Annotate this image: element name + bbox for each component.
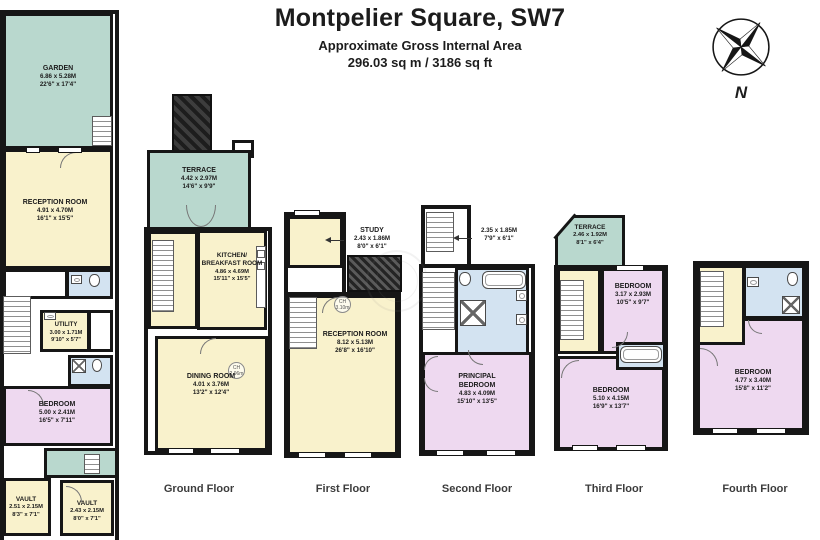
- sink-icon: [516, 290, 527, 301]
- bathtub-icon: [482, 271, 526, 289]
- room-dim-imperial: 16'9" x 13'7": [576, 403, 646, 411]
- room-name: DINING ROOM: [174, 372, 248, 381]
- chimney-block: [172, 94, 212, 152]
- title-block: Montpelier Square, SW7 Approximate Gross…: [160, 4, 680, 70]
- gross-internal-area: 296.03 sq m / 3186 sq ft: [160, 55, 680, 70]
- watermark-icon: [366, 250, 428, 312]
- room-dim-imperial: 26'8" x 16'10": [315, 347, 395, 355]
- gf-stairs: [152, 240, 174, 312]
- room-name: PRINCIPAL BEDROOM: [444, 372, 510, 390]
- room-dim-metric: 2.43 x 2.15M: [61, 508, 113, 516]
- window-marker: [168, 448, 194, 454]
- room-dim-imperial: 9'10" x 5'7": [40, 337, 92, 344]
- compass-rose-icon: [710, 16, 772, 78]
- toilet-icon: [459, 272, 471, 286]
- room-dim-imperial: 7'9" x 6'1": [473, 235, 525, 243]
- room-name: BEDROOM: [576, 386, 646, 395]
- room-name: TERRACE: [558, 224, 622, 232]
- window-marker: [58, 147, 82, 153]
- room-label-sf-landing: 2.35 x 1.85M 7'9" x 6'1": [473, 227, 525, 243]
- room-dim-metric: 3.17 x 2.93M: [603, 291, 663, 299]
- shower-icon: [782, 296, 800, 314]
- room-dim-imperial: 8'1" x 6'4": [558, 240, 622, 248]
- floorplan-page: Montpelier Square, SW7 Approximate Gross…: [0, 0, 820, 540]
- room-dim-imperial: 8'0" x 6'1": [344, 243, 400, 251]
- landing-arrow-head: [453, 235, 459, 241]
- room-dim-metric: 8.12 x 5.13M: [315, 339, 395, 347]
- room-name: UTILITY: [40, 322, 92, 330]
- window-marker: [756, 428, 786, 434]
- landing-arrow: [459, 238, 472, 239]
- room-dim-imperial: 16'1" x 15'5": [15, 215, 95, 223]
- room-name: STUDY: [344, 226, 400, 235]
- room-dim-metric: 2.43 x 1.86M: [344, 235, 400, 243]
- room-label-kitchen: KITCHEN/ BREAKFAST ROOM 4.86 x 4.69M 15'…: [201, 252, 263, 284]
- room-name: BEDROOM: [17, 400, 97, 409]
- room-dim-imperial: 15'10" x 13'5": [444, 398, 510, 406]
- room-dim-imperial: 15'8" x 11'2": [716, 385, 790, 393]
- room-dim-metric: 4.01 x 3.76M: [174, 381, 248, 389]
- ff-stairs: [289, 297, 317, 349]
- room-label-lg-bedroom: BEDROOM 5.00 x 2.41M 16'5" x 7'11": [17, 400, 97, 425]
- room-dim-imperial: 8'0" x 7'1": [61, 516, 113, 524]
- lightwell-stairs: [84, 454, 100, 474]
- sf-stairs: [422, 272, 455, 330]
- compass-north-label: N: [708, 83, 774, 103]
- room-name: TERRACE: [157, 166, 241, 175]
- shower-icon: [460, 300, 486, 326]
- toilet-icon: [787, 272, 798, 286]
- lg-hall: [3, 269, 68, 299]
- window-marker: [344, 452, 372, 458]
- room-label-fourth-bedroom: BEDROOM 4.77 x 3.40M 15'8" x 11'2": [716, 368, 790, 393]
- floor-label-second: Second Floor: [427, 483, 527, 495]
- room-dim-metric: 4.83 x 4.09M: [444, 390, 510, 398]
- room-dim-metric: 4.86 x 4.69M: [201, 269, 263, 277]
- room-name: BEDROOM: [716, 368, 790, 377]
- room-dim-metric: 2.35 x 1.85M: [473, 227, 525, 235]
- ceiling-height-badge: CH 3.10m: [334, 296, 351, 313]
- sink-icon: [44, 312, 56, 320]
- room-label-tf-bedroom-back: BEDROOM 5.10 x 4.15M 16'9" x 13'7": [576, 386, 646, 411]
- room-dim-imperial: 13'2" x 12'4": [174, 389, 248, 397]
- room-label-utility: UTILITY 3.00 x 1.71M 9'10" x 5'7": [40, 322, 92, 344]
- room-label-principal-bedroom: PRINCIPAL BEDROOM 4.83 x 4.09M 15'10" x …: [444, 372, 510, 406]
- window-marker: [616, 265, 644, 271]
- toilet-icon: [89, 274, 100, 287]
- room-name: RECEPTION ROOM: [315, 330, 395, 339]
- window-marker: [294, 210, 320, 216]
- room-label-gf-terrace: TERRACE 4.42 x 2.97M 14'6" x 9'9": [157, 166, 241, 191]
- room-dim-imperial: 14'6" x 9'9": [157, 183, 241, 191]
- room-label-vault-left: VAULT 2.51 x 2.15M 8'3" x 7'1": [2, 496, 50, 519]
- room-label-garden: GARDEN 6.86 x 5.28M 22'6" x 17'4": [18, 64, 98, 89]
- room-study: [287, 216, 343, 268]
- room-dim-imperial: 16'5" x 7'11": [17, 417, 97, 425]
- room-name: RECEPTION ROOM: [15, 198, 95, 207]
- window-marker: [712, 428, 738, 434]
- window-marker: [572, 445, 598, 451]
- sink-icon: [71, 275, 82, 284]
- toilet-icon: [92, 359, 102, 372]
- lg-stairs: [3, 296, 31, 354]
- room-dim-imperial: 10'5" x 9'7": [603, 299, 663, 307]
- room-dim-imperial: 22'6" x 17'4": [18, 81, 98, 89]
- window-marker: [486, 450, 516, 456]
- floor-label-ground: Ground Floor: [149, 483, 249, 495]
- sink-icon: [516, 314, 527, 325]
- room-dim-metric: 5.10 x 4.15M: [576, 395, 646, 403]
- subtitle: Approximate Gross Internal Area: [160, 38, 680, 53]
- room-label-lg-reception: RECEPTION ROOM 4.91 x 4.70M 16'1" x 15'5…: [15, 198, 95, 223]
- room-dim-metric: 3.00 x 1.71M: [40, 330, 92, 337]
- room-dim-metric: 6.86 x 5.28M: [18, 73, 98, 81]
- study-arrow-head: [325, 237, 331, 243]
- ch-value: 3.10m: [335, 306, 350, 312]
- floor-label-fourth: Fourth Floor: [705, 483, 805, 495]
- room-label-dining: DINING ROOM 4.01 x 3.76M 13'2" x 12'4": [174, 372, 248, 397]
- room-dim-metric: 2.46 x 1.92M: [558, 232, 622, 240]
- room-label-study: STUDY 2.43 x 1.86M 8'0" x 6'1": [344, 226, 400, 251]
- tf-stairs: [560, 280, 584, 340]
- fourth-stairs: [700, 271, 724, 327]
- window-marker: [210, 448, 240, 454]
- room-dim-metric: 4.91 x 4.70M: [15, 207, 95, 215]
- garden-stairs: [92, 116, 112, 146]
- study-arrow: [331, 240, 344, 241]
- window-marker: [436, 450, 464, 456]
- shower-icon: [72, 359, 86, 373]
- room-name: BEDROOM: [603, 282, 663, 291]
- sf-upper-stairs: [426, 212, 454, 252]
- floor-label-third: Third Floor: [564, 483, 664, 495]
- room-label-tf-terrace: TERRACE 2.46 x 1.92M 8'1" x 6'4": [558, 224, 622, 247]
- window-marker: [298, 452, 326, 458]
- room-dim-metric: 4.77 x 3.40M: [716, 377, 790, 385]
- page-title: Montpelier Square, SW7: [160, 4, 680, 33]
- room-name: KITCHEN/ BREAKFAST ROOM: [201, 252, 263, 269]
- window-marker: [616, 445, 646, 451]
- sink-icon: [747, 277, 759, 287]
- room-dim-metric: 2.51 x 2.15M: [2, 504, 50, 512]
- room-label-tf-bedroom-front: BEDROOM 3.17 x 2.93M 10'5" x 9'7": [603, 282, 663, 307]
- room-dim-metric: 5.00 x 2.41M: [17, 409, 97, 417]
- room-label-vault-right: VAULT 2.43 x 2.15M 8'0" x 7'1": [61, 500, 113, 523]
- compass: N: [708, 16, 774, 103]
- floor-label-first: First Floor: [293, 483, 393, 495]
- room-label-ff-reception: RECEPTION ROOM 8.12 x 5.13M 26'8" x 16'1…: [315, 330, 395, 355]
- bathtub-icon: [620, 346, 662, 363]
- room-dim-imperial: 8'3" x 7'1": [2, 512, 50, 520]
- room-dim-metric: 4.42 x 2.97M: [157, 175, 241, 183]
- room-name: GARDEN: [18, 64, 98, 73]
- room-name: VAULT: [2, 496, 50, 504]
- room-dim-imperial: 15'11" x 15'5": [201, 276, 263, 284]
- room-name: VAULT: [61, 500, 113, 508]
- lg-lightwell: [44, 448, 118, 478]
- window-marker: [26, 147, 40, 153]
